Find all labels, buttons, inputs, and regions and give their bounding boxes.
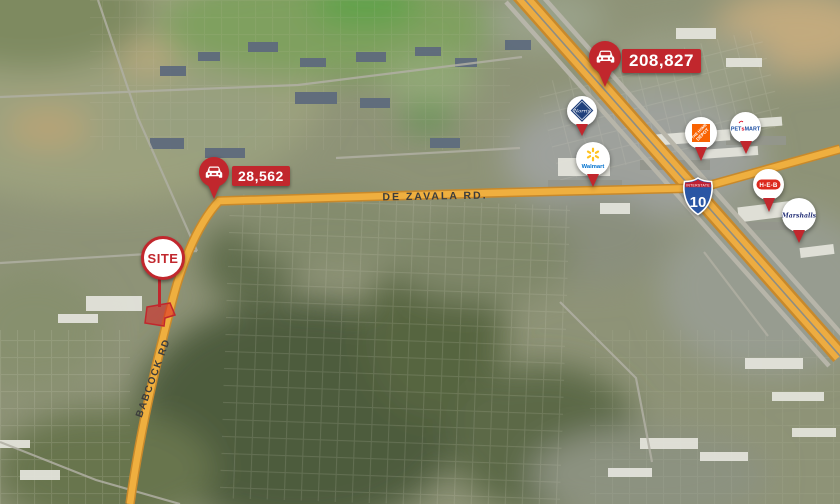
de-zavala-road-label: DE ZAVALA RD. bbox=[382, 190, 487, 204]
pin-tail bbox=[740, 141, 752, 154]
car-icon bbox=[199, 157, 229, 187]
walmart-spark-icon bbox=[586, 148, 599, 162]
marshalls-logo-pin: Marshalls bbox=[782, 198, 816, 243]
aerial-map: DE ZAVALA RD. BABCOCK RD INTERSTATE 10 2… bbox=[0, 0, 840, 504]
petsmart-logo: PETsMART bbox=[730, 112, 761, 143]
walmart-logo-pin: Walmart bbox=[576, 142, 610, 187]
car-icon bbox=[589, 41, 621, 73]
walmart-logo: Walmart bbox=[576, 142, 610, 176]
walmart-wordmark: Walmart bbox=[582, 164, 605, 170]
norris-logo: Norris bbox=[567, 96, 597, 126]
traffic-count-label-i10: 208,827 bbox=[622, 49, 701, 73]
petsmart-swoosh bbox=[739, 121, 743, 123]
pin-tail bbox=[598, 71, 612, 87]
traffic-count-pin-i10 bbox=[589, 41, 621, 87]
interstate-caption: INTERSTATE bbox=[686, 183, 710, 187]
pin-tail bbox=[587, 174, 599, 187]
heb-logo: H-E-B bbox=[753, 169, 784, 200]
site-label: SITE bbox=[148, 251, 179, 266]
site-parcel-highlight bbox=[143, 301, 179, 331]
norris-wordmark: Norris bbox=[573, 108, 591, 114]
heb-logo-pin: H-E-B bbox=[753, 169, 784, 212]
interstate-number: 10 bbox=[690, 194, 707, 211]
traffic-count-pin-de-zavala bbox=[199, 157, 229, 199]
aerial-imagery: DE ZAVALA RD. BABCOCK RD bbox=[0, 0, 840, 504]
home-depot-logo-pin: THE HOME DEPOT bbox=[685, 117, 717, 161]
pin-tail bbox=[208, 185, 220, 199]
pin-tail bbox=[695, 147, 707, 161]
pin-tail bbox=[793, 230, 805, 243]
marshalls-logo: Marshalls bbox=[782, 198, 816, 232]
pin-tail bbox=[763, 198, 775, 212]
traffic-count-label-de-zavala: 28,562 bbox=[232, 166, 290, 186]
home-depot-logo: THE HOME DEPOT bbox=[685, 117, 717, 149]
heb-wordmark: H-E-B bbox=[759, 182, 778, 189]
pin-tail bbox=[576, 124, 588, 136]
petsmart-wordmark-mart: MART bbox=[745, 127, 761, 133]
marshalls-wordmark: Marshalls bbox=[782, 213, 816, 220]
interstate-10-shield: INTERSTATE 10 bbox=[681, 176, 715, 221]
site-marker: SITE bbox=[141, 236, 185, 280]
svg-text:PETsMART: PETsMART bbox=[731, 127, 761, 133]
petsmart-logo-pin: PETsMART bbox=[730, 112, 761, 154]
norris-logo-pin: Norris bbox=[567, 96, 597, 136]
